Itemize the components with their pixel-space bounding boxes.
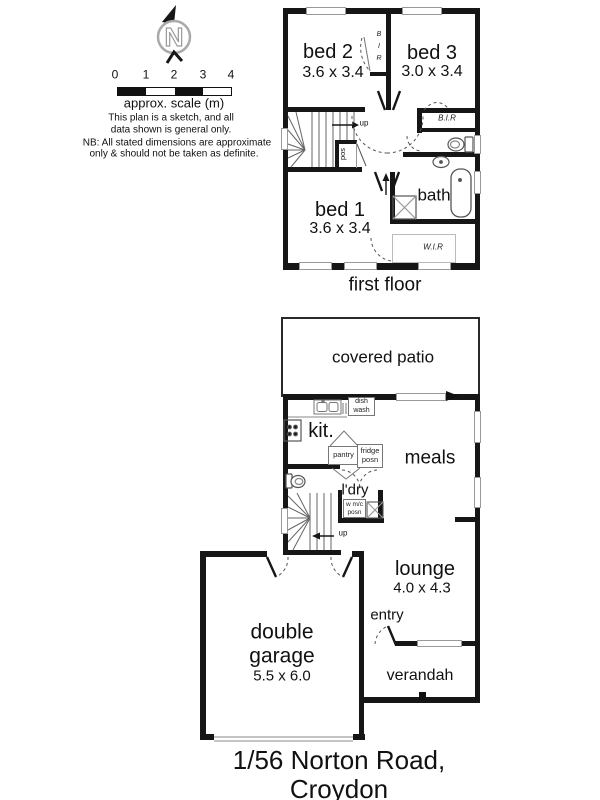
first-floor-caption: first floor (349, 274, 422, 295)
bir-vertical-label: B I R (376, 29, 381, 65)
laundry-trough-icon (367, 502, 383, 518)
bed1-dims: 3.6 x 3.4 (309, 220, 370, 238)
kitchen-label: kit. (308, 420, 334, 442)
patio-door-arrow (446, 391, 459, 401)
basin-icon (433, 157, 449, 168)
bath-label: bath (417, 185, 450, 204)
address-title: 1/56 Norton Road, Croydon (209, 746, 470, 800)
wir-label: W.I.R (423, 244, 443, 253)
bed3-dims: 3.0 x 3.4 (401, 63, 462, 81)
toilet-icon (448, 137, 473, 152)
cupboard-label: pos (339, 148, 347, 160)
bathtub-icon (451, 169, 471, 217)
stairs-first-floor (288, 112, 366, 167)
bed2-label: bed 2 (303, 41, 353, 63)
covered-patio-label: covered patio (332, 347, 434, 366)
lounge-dims: 4.0 x 4.3 (393, 581, 451, 598)
floor-plan-canvas: N 0 1 2 3 4 approx. scale (m) This plan … (0, 0, 600, 800)
up-label-ground-floor: up (339, 530, 348, 539)
bed2-dims: 3.6 x 3.4 (302, 64, 363, 82)
verandah-label: verandah (387, 667, 454, 685)
stairs-ground-floor (288, 493, 331, 550)
cooktop-icon (284, 420, 301, 441)
up-label-first-floor: up (360, 120, 369, 129)
door-arrow-bed1 (383, 173, 390, 195)
door-leaves-first-floor (375, 91, 400, 191)
toilet-ground-icon (286, 474, 305, 488)
bed3-label: bed 3 (407, 42, 457, 64)
sink-icon (314, 400, 346, 414)
garage-door (214, 734, 353, 742)
garage-label: double garage (249, 620, 314, 667)
shower-icon (393, 196, 416, 219)
bed1-label: bed 1 (315, 199, 365, 221)
entry-label: entry (370, 608, 403, 625)
meals-label: meals (405, 447, 456, 468)
laundry-label: l'dry (341, 483, 368, 500)
bir-label: B.I.R (438, 115, 456, 124)
up-arrow-first-floor (332, 122, 359, 129)
robe-door-line (364, 37, 370, 71)
lounge-label: lounge (395, 558, 455, 580)
garage-dims: 5.5 x 6.0 (253, 669, 311, 686)
